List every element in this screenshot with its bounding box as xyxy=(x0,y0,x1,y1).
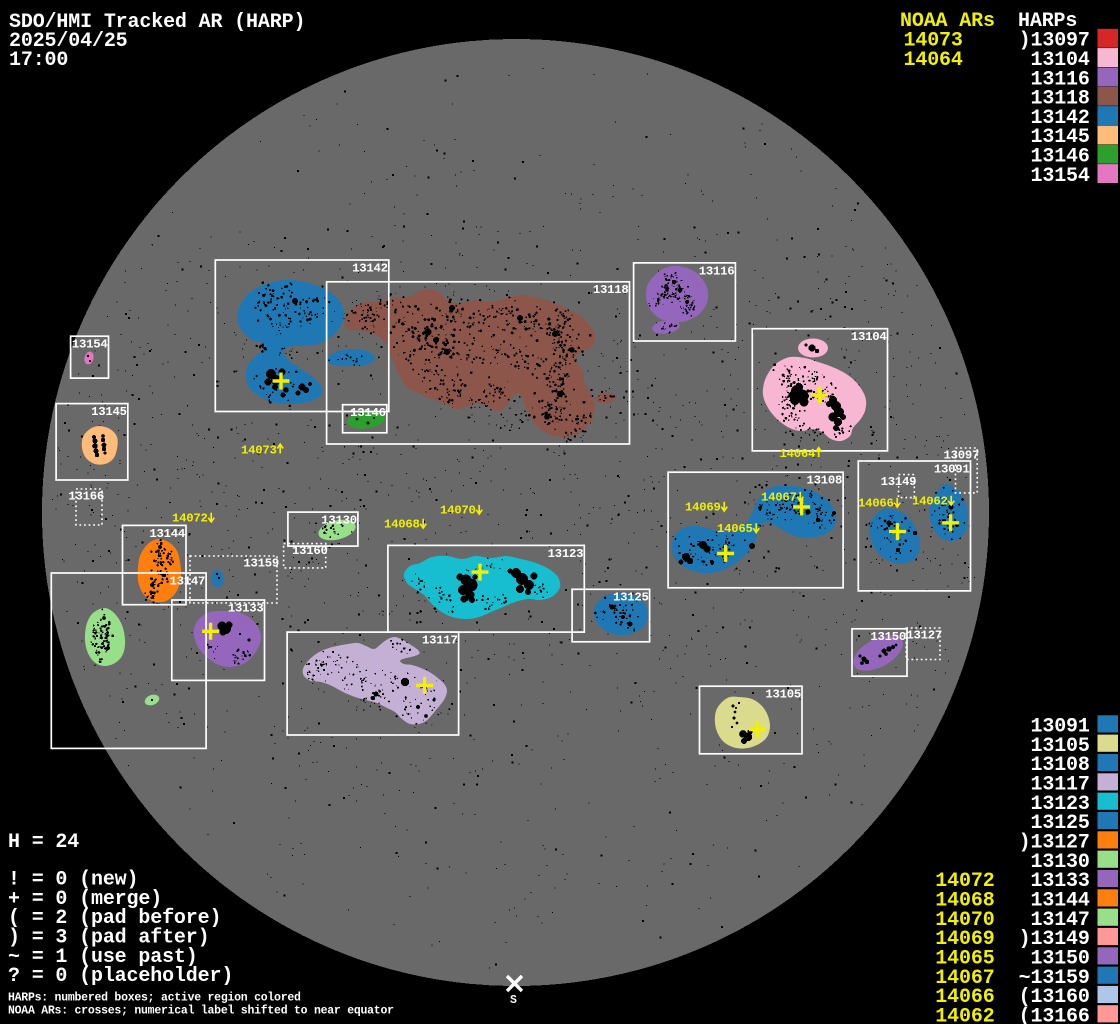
svg-text:14067: 14067 xyxy=(761,491,797,505)
svg-text:NOAA ARs: crosses; numerical l: NOAA ARs: crosses; numerical label shift… xyxy=(8,1005,394,1018)
svg-text:13097: 13097 xyxy=(944,449,980,463)
svg-text:13125: 13125 xyxy=(613,591,649,605)
svg-text:13104: 13104 xyxy=(851,330,888,344)
svg-text:13116: 13116 xyxy=(699,264,735,278)
svg-text:): ) xyxy=(1019,832,1031,855)
svg-text:13117: 13117 xyxy=(422,634,458,648)
svg-text:13154: 13154 xyxy=(72,338,109,352)
svg-text:13166: 13166 xyxy=(1031,1006,1090,1024)
svg-text:13144: 13144 xyxy=(149,527,186,541)
svg-text:13118: 13118 xyxy=(593,283,629,297)
svg-text:17:00: 17:00 xyxy=(9,49,68,72)
svg-text:14073: 14073 xyxy=(241,444,277,458)
svg-text:14069: 14069 xyxy=(685,501,721,515)
svg-text:13127: 13127 xyxy=(906,629,942,643)
svg-text:13146: 13146 xyxy=(350,406,386,420)
svg-text:13145: 13145 xyxy=(91,405,127,419)
svg-text:14068: 14068 xyxy=(384,518,420,532)
svg-text:13108: 13108 xyxy=(806,474,842,488)
svg-text:13123: 13123 xyxy=(548,547,584,561)
svg-text:14064: 14064 xyxy=(780,447,817,461)
svg-text:HARPs: numbered boxes; active: HARPs: numbered boxes; active region col… xyxy=(8,992,301,1005)
svg-text:13149: 13149 xyxy=(881,475,917,489)
svg-text:14065: 14065 xyxy=(717,522,753,536)
svg-text:13150: 13150 xyxy=(870,630,906,644)
svg-text:13142: 13142 xyxy=(352,261,388,275)
svg-text:13154: 13154 xyxy=(1031,165,1090,188)
svg-text:14070: 14070 xyxy=(440,504,476,518)
svg-text:13091: 13091 xyxy=(934,462,970,476)
svg-text:14062: 14062 xyxy=(912,495,948,509)
svg-text:13159: 13159 xyxy=(243,557,279,571)
svg-text:14064: 14064 xyxy=(904,49,963,72)
svg-text:S: S xyxy=(510,994,517,1007)
svg-text:13166: 13166 xyxy=(68,490,104,504)
svg-text:13147: 13147 xyxy=(169,574,205,588)
svg-text:13130: 13130 xyxy=(321,514,357,528)
svg-text:14072: 14072 xyxy=(172,512,208,526)
svg-text:(: ( xyxy=(1019,1006,1031,1024)
svg-text:): ) xyxy=(1019,928,1031,951)
svg-text:13160: 13160 xyxy=(292,544,328,558)
svg-text:13105: 13105 xyxy=(765,688,801,702)
svg-text:? = 0 (placeholder): ? = 0 (placeholder) xyxy=(8,965,233,988)
svg-text:): ) xyxy=(1019,30,1031,53)
svg-text:H = 24: H = 24 xyxy=(8,831,79,854)
svg-text:14066: 14066 xyxy=(858,497,894,511)
svg-text:14062: 14062 xyxy=(935,1006,994,1024)
